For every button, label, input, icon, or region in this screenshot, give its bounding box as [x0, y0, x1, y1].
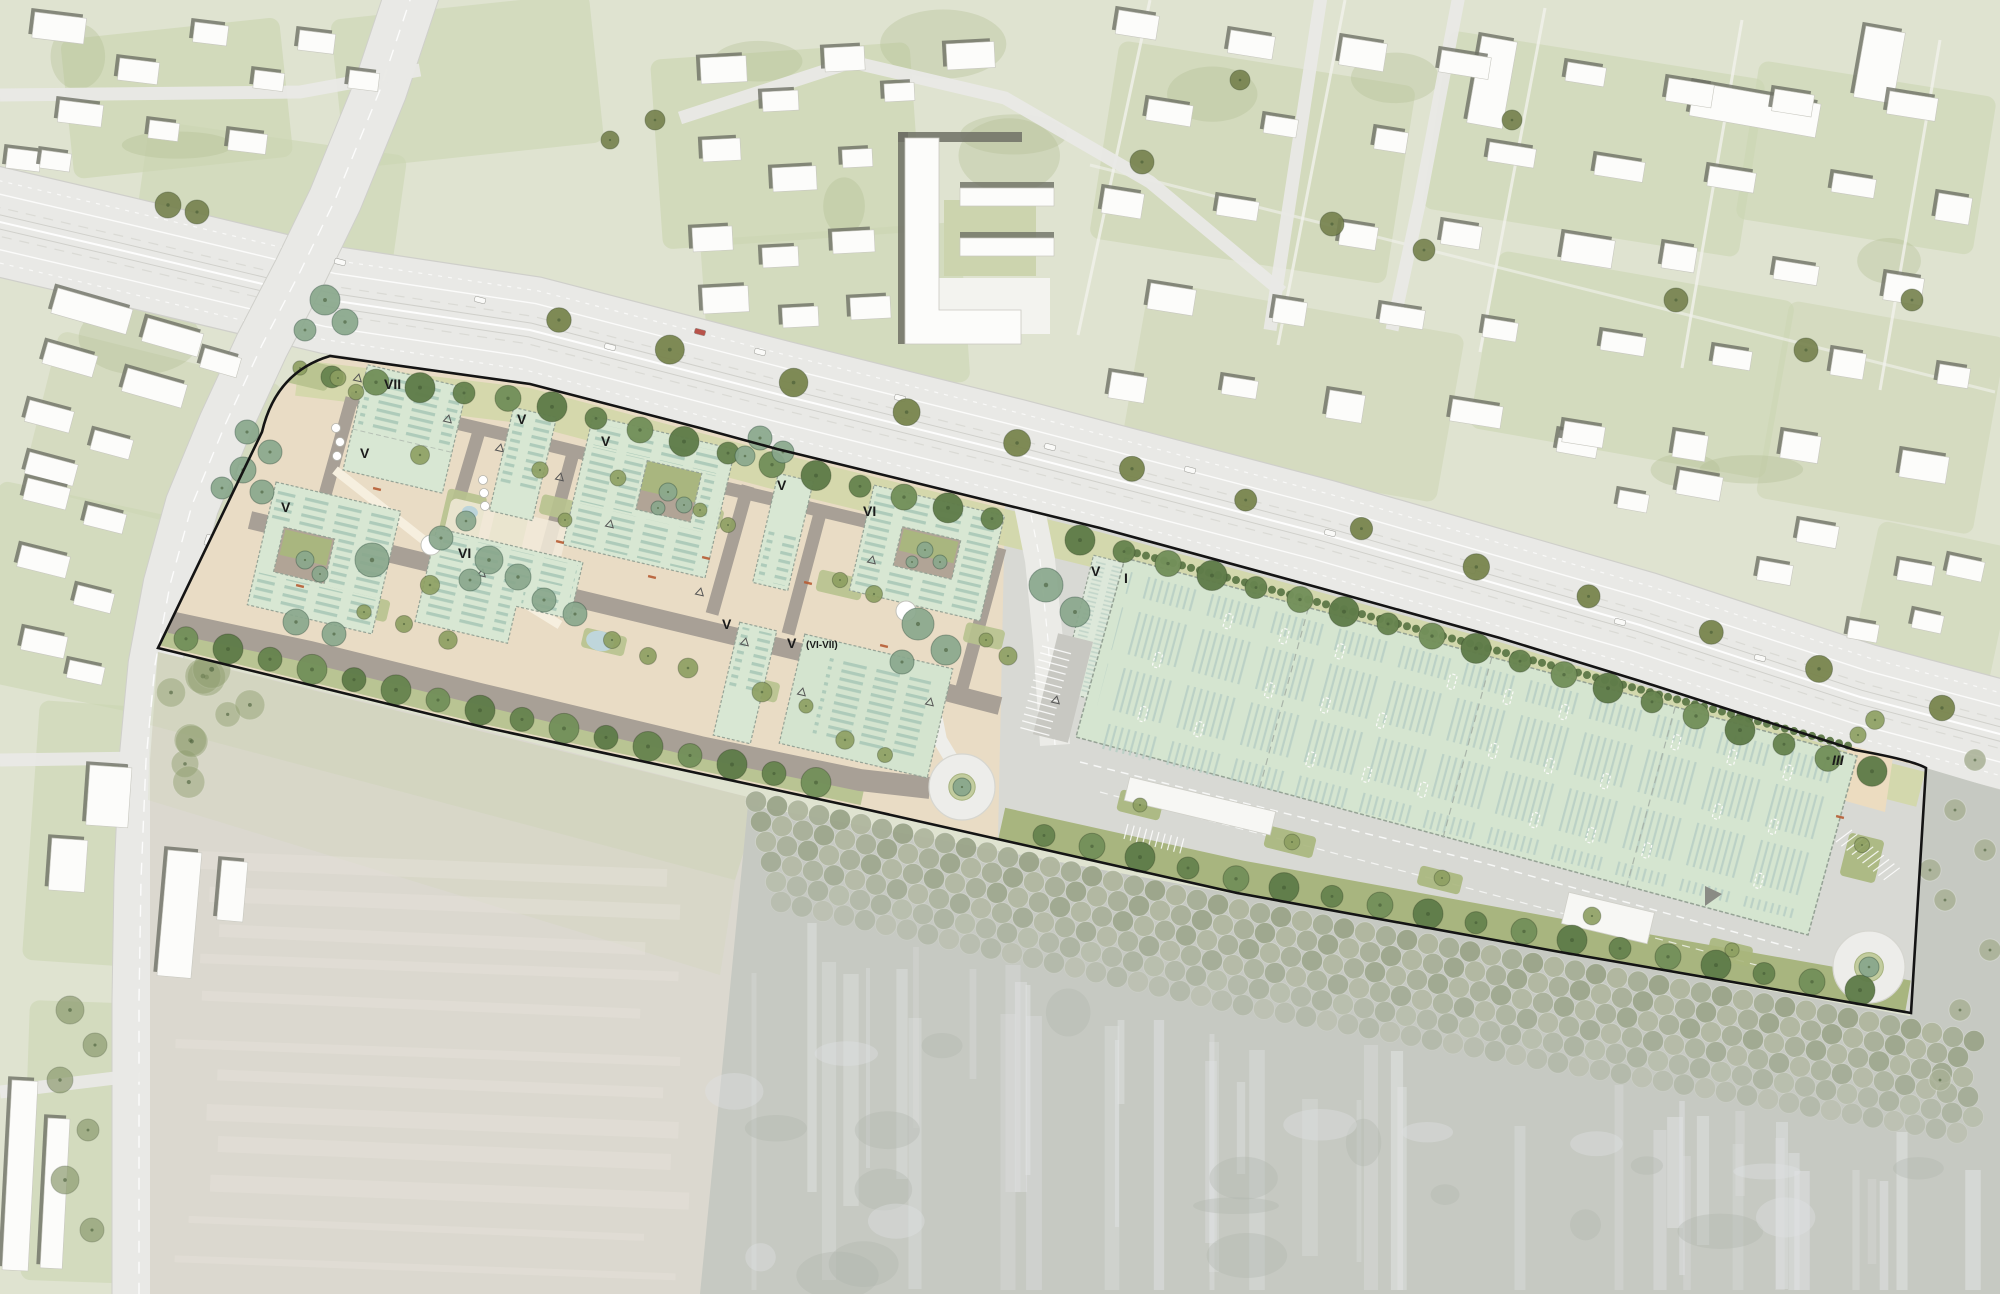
tree-center [1073, 610, 1077, 614]
tree-center [730, 763, 734, 767]
forest-tree [1223, 955, 1244, 976]
forest-tree [1517, 1008, 1538, 1029]
forest-tree [1024, 872, 1045, 893]
context-building [144, 116, 180, 141]
forest-tree [950, 893, 971, 914]
forest-tree [1716, 1081, 1737, 1102]
forest-tree [914, 828, 935, 849]
forest-light [1756, 1197, 1815, 1237]
tree-center [1939, 1079, 1942, 1082]
forest-tree [935, 833, 956, 854]
tree-center [1139, 804, 1141, 806]
forest-blotch [1193, 1197, 1279, 1214]
forest-tree [1596, 1003, 1617, 1024]
tree-center [1430, 634, 1433, 637]
forest-tree [1018, 927, 1039, 948]
context-building [249, 66, 285, 91]
tree-center [516, 575, 519, 578]
tree-center [221, 487, 224, 490]
forest-tree [934, 908, 955, 929]
tree-center [647, 655, 649, 657]
forest-tree [813, 901, 834, 922]
forest-tree [835, 829, 856, 850]
tree-center [638, 428, 641, 431]
forest-blotch [921, 1033, 962, 1058]
tree-center [1940, 706, 1943, 709]
tree-center [916, 622, 920, 626]
context-building [1268, 294, 1308, 327]
context-building-body [1108, 372, 1148, 403]
forest-tree [1906, 1038, 1927, 1059]
tree-center [604, 736, 607, 739]
forest-tree [829, 885, 850, 906]
forest-tree [1144, 956, 1165, 977]
forest-tree [1459, 1017, 1480, 1038]
tree-center [814, 781, 818, 785]
tree-center [436, 699, 439, 702]
forest-tree [1822, 1024, 1843, 1045]
tree-center [682, 440, 686, 444]
context-building-body [117, 58, 159, 85]
tree-center [924, 549, 926, 551]
tree-center [1763, 972, 1766, 975]
context-building-body [217, 860, 248, 922]
tree-center [1944, 899, 1947, 902]
forest-tree [1103, 871, 1124, 892]
forest-tree [1454, 997, 1475, 1018]
forest-tree [1291, 986, 1312, 1007]
tree-center [1138, 855, 1142, 859]
context-building [768, 162, 817, 192]
tree-center [87, 1129, 90, 1132]
forest-tree [1229, 899, 1250, 920]
forest-tree [1737, 1085, 1758, 1106]
forest-tree [1208, 894, 1229, 915]
forest-tree [1318, 934, 1339, 955]
forest-tree [792, 896, 813, 917]
forest-tree [1522, 1028, 1543, 1049]
forest-tree [1800, 1096, 1821, 1117]
forest-tree [1911, 1058, 1932, 1079]
forest-tree [1680, 1018, 1701, 1039]
forest-tree [887, 879, 908, 900]
forest-tree [1549, 976, 1570, 997]
forest-tree [1443, 1033, 1464, 1054]
forest-tree [1355, 922, 1376, 943]
tree-center [1929, 869, 1932, 872]
forest-tree [771, 892, 792, 913]
forest-tree [1523, 953, 1544, 974]
forest-tree [1817, 1004, 1838, 1025]
forest-tree [1323, 954, 1344, 975]
context-building [942, 38, 995, 70]
forest-tree [1165, 961, 1186, 982]
forest-tree [961, 858, 982, 879]
context-building-body [832, 230, 875, 254]
forest-tree [1066, 881, 1087, 902]
forest-tree [1123, 951, 1144, 972]
forest-tree [1397, 930, 1418, 951]
forest-tree [1212, 990, 1233, 1011]
hedge [1268, 586, 1276, 594]
tree-center [195, 210, 198, 213]
forest-tree [1507, 969, 1528, 990]
forest-tree [1674, 1074, 1695, 1095]
forest-tree [1271, 907, 1292, 928]
forest-tree [1648, 1051, 1669, 1072]
context-building-body [782, 306, 819, 328]
forest-tree [892, 899, 913, 920]
forest-tree [834, 905, 855, 926]
forest-tree [982, 862, 1003, 883]
tree-center [1298, 598, 1301, 601]
forest-tree [966, 878, 987, 899]
forest-light [815, 1041, 878, 1066]
tree-center [944, 648, 948, 652]
context-building [294, 26, 337, 54]
tree-center [226, 713, 229, 716]
forest-tree [1044, 952, 1065, 973]
forest-tree [1838, 1008, 1859, 1029]
forest-blotch [745, 1115, 807, 1142]
forest-tree [971, 898, 992, 919]
context-building-body [700, 56, 747, 84]
tree-center [506, 397, 509, 400]
tree-center [1591, 915, 1593, 917]
forest-tree [1338, 1014, 1359, 1035]
forest-tree [1963, 1106, 1984, 1127]
planter [480, 489, 489, 498]
context-building-body [348, 70, 380, 92]
context-building [344, 66, 380, 91]
context-building [846, 292, 891, 320]
tree-center [1474, 646, 1478, 650]
context-building-body [39, 150, 71, 172]
forest-tree [1381, 946, 1402, 967]
forest-tree [751, 811, 772, 832]
forest-tree [998, 847, 1019, 868]
forest-tree [1565, 960, 1586, 981]
forest-tree [913, 904, 934, 925]
forest-tree [1926, 1118, 1947, 1139]
tree-center [343, 320, 346, 323]
tree-center [1123, 550, 1126, 553]
tree-center [1330, 222, 1333, 225]
forest-tree [1401, 1025, 1422, 1046]
forest-tree [1449, 977, 1470, 998]
forest-tree [1166, 885, 1187, 906]
forest-blotch [1677, 1214, 1763, 1249]
tree-center [403, 623, 405, 625]
forest-tree [1191, 985, 1212, 1006]
context-building [1657, 239, 1698, 273]
context-building [1104, 368, 1148, 403]
forest-tree [1113, 911, 1134, 932]
tree-center [1619, 947, 1622, 950]
tree-center [1989, 949, 1992, 952]
tree-center [1239, 79, 1242, 82]
forest-tree [756, 831, 777, 852]
forest-tree [919, 848, 940, 869]
forest-tree [1391, 985, 1412, 1006]
building-level-label: VI [458, 545, 471, 561]
forest-tree [1586, 964, 1607, 985]
forest-tree [1422, 1029, 1443, 1050]
tree-center [900, 660, 903, 663]
forest-tree [1302, 950, 1323, 971]
forest-tree [1008, 887, 1029, 908]
forest-tree [1570, 980, 1591, 1001]
forest-tree [1334, 918, 1355, 939]
forest-tree [1439, 937, 1460, 958]
forest-tree [1821, 1100, 1842, 1121]
forest-tree [1863, 1107, 1884, 1128]
forest-tree [955, 913, 976, 934]
forest-tree [1039, 932, 1060, 953]
forest-tree [1071, 901, 1092, 922]
context-building-body [1935, 193, 1973, 225]
forest-tree [788, 800, 809, 821]
tree-center [1587, 595, 1590, 598]
tree-center [463, 392, 466, 395]
forest-tree [1486, 965, 1507, 986]
context-building [1931, 189, 1973, 225]
forest-tree [1134, 916, 1155, 937]
forest-tree [1129, 895, 1150, 916]
forest-tree [1811, 1060, 1832, 1081]
hedge [1322, 600, 1330, 608]
tree-center [310, 667, 314, 671]
tree-center [1166, 562, 1169, 565]
tree-center [337, 377, 339, 379]
forest-tree [1738, 1009, 1759, 1030]
tree-center [1044, 583, 1048, 587]
forest-tree [1145, 880, 1166, 901]
tree-center [1714, 963, 1718, 967]
context-building-body [1672, 431, 1709, 462]
tree-center [1244, 499, 1247, 502]
tree-center [226, 647, 230, 651]
forest-tree [1312, 990, 1333, 1011]
tree-center [991, 517, 994, 520]
tree-center [183, 762, 187, 766]
forest-tree [1879, 1091, 1900, 1112]
forest-blotch [1209, 1157, 1277, 1200]
tree-center [439, 536, 442, 539]
forest-tree [793, 820, 814, 841]
tree-center [1959, 1009, 1962, 1012]
context-building [1668, 427, 1709, 462]
building-level-label: I [1124, 570, 1128, 586]
context-building [778, 303, 819, 329]
forest-blotch [1570, 1209, 1601, 1240]
forest-tree [1407, 969, 1428, 990]
forest-tree [1706, 1042, 1727, 1063]
forest-tree [1176, 925, 1197, 946]
hedge [1448, 634, 1456, 642]
forest-tree [1905, 1114, 1926, 1135]
forest-tree [992, 903, 1013, 924]
tree-center [169, 691, 173, 695]
forest-tree [1538, 1012, 1559, 1033]
forest-tree [1149, 976, 1170, 997]
forest-tree [1465, 961, 1486, 982]
forest-tree [1317, 1010, 1338, 1031]
forest-tree [1376, 926, 1397, 947]
forest-tree [1527, 1048, 1548, 1069]
tree-center [1043, 834, 1046, 837]
forest-tree [1402, 949, 1423, 970]
forest-tree [1139, 936, 1160, 957]
tree-center [792, 381, 796, 385]
forest-tree [855, 910, 876, 931]
school-bar [960, 188, 1054, 206]
forest-light [745, 1243, 776, 1271]
building-level-label: V [360, 445, 370, 461]
forest-tree [1675, 998, 1696, 1019]
tree-center [687, 667, 690, 670]
forest-tree [1890, 1055, 1911, 1076]
context-building [698, 135, 741, 163]
tree-center [873, 593, 875, 595]
forest-tree [1922, 1023, 1943, 1044]
tree-center [1210, 574, 1214, 578]
tree-center [268, 450, 271, 453]
forest-tree [1065, 957, 1086, 978]
tree-center [166, 203, 169, 206]
forest-tree [1481, 945, 1502, 966]
context-building-body [6, 148, 42, 172]
forest-tree [1691, 982, 1712, 1003]
forest-tree [1785, 1036, 1806, 1057]
forest-tree [1197, 930, 1218, 951]
tree-center [260, 490, 263, 493]
tree-center [1387, 622, 1390, 625]
forest-light [1570, 1131, 1623, 1156]
forest-tree [1869, 1051, 1890, 1072]
forest-tree [1874, 1071, 1895, 1092]
context-building-body [228, 130, 268, 154]
tree-center [63, 1178, 67, 1182]
building-level-label: VI [863, 503, 876, 519]
context-building-body [193, 22, 229, 46]
context-building [1826, 345, 1867, 380]
tree-center [902, 495, 905, 498]
forest-tree [956, 837, 977, 858]
forest-tree [861, 854, 882, 875]
context-building [189, 18, 230, 46]
tree-center [304, 559, 306, 561]
forest-tree [1843, 1027, 1864, 1048]
tree-center [814, 474, 818, 478]
forest-tree [1743, 1029, 1764, 1050]
forest-tree [840, 849, 861, 870]
forest-tree [1102, 946, 1123, 967]
context-building-body [702, 286, 749, 314]
forest-tree [1360, 942, 1381, 963]
context-building [838, 145, 873, 168]
tree-center [946, 506, 950, 510]
tree-center [1826, 757, 1829, 760]
forest-light [1402, 1122, 1453, 1142]
tree-center [465, 520, 468, 523]
context-building-body [86, 765, 132, 828]
forest-tree [1612, 987, 1633, 1008]
forest-tree [1228, 975, 1249, 996]
forest-tree [1585, 1040, 1606, 1061]
tree-center [1342, 610, 1346, 614]
tree-center [1426, 912, 1430, 916]
forest-tree [1328, 974, 1349, 995]
forest-tree [1901, 1019, 1922, 1040]
forest-tree [819, 845, 840, 866]
tree-center [905, 410, 909, 414]
forest-tree [1611, 1063, 1632, 1084]
context-building [213, 856, 248, 922]
tree-center [1666, 955, 1669, 958]
forest-tree [1423, 953, 1444, 974]
tree-center [844, 739, 846, 741]
tree-center [418, 386, 422, 390]
forest-tree [1927, 1042, 1948, 1063]
masterplan-stage: VIIVVVVVIVVIVV(VI-VII)VIIII [0, 0, 2000, 1294]
forest-tree [1685, 1038, 1706, 1059]
forest-tree [1664, 1034, 1685, 1055]
forest-tree [1055, 917, 1076, 938]
tree-center [1694, 714, 1697, 717]
forest-tree [803, 860, 824, 881]
tree-center [245, 430, 248, 433]
forest-tree [1076, 921, 1097, 942]
tree-center [1519, 660, 1522, 663]
hedge [1628, 683, 1636, 691]
forest-tree [1107, 966, 1128, 987]
forest-tree [1034, 912, 1055, 933]
forest-tree [1359, 1018, 1380, 1039]
tree-center [1522, 930, 1525, 933]
forest-tree [1506, 1044, 1527, 1065]
tree-center [1974, 759, 1977, 762]
forest-tree [1753, 1069, 1774, 1090]
forest-tree [1842, 1103, 1863, 1124]
tree-center [654, 119, 657, 122]
forest-tree [1460, 941, 1481, 962]
forest-tree [1255, 923, 1276, 944]
building-level-label: V [787, 635, 797, 651]
forest-tree [876, 914, 897, 935]
forest-tree [981, 938, 1002, 959]
tree-center [187, 780, 191, 784]
forest-tree [830, 809, 851, 830]
forest-tree [1790, 1056, 1811, 1077]
tree-center [688, 754, 691, 757]
tree-center [1651, 700, 1654, 703]
tree-center [323, 298, 327, 302]
forest-tree [1953, 1066, 1974, 1087]
tree-center [429, 584, 432, 587]
forest-tree [1192, 910, 1213, 931]
tree-center [447, 639, 449, 641]
context-building [758, 243, 799, 269]
forest-tree [1554, 996, 1575, 1017]
context-building [113, 54, 160, 85]
forest-tree [1722, 1025, 1743, 1046]
tree-center [374, 381, 377, 384]
forest-tree [1187, 889, 1208, 910]
forest-tree [1354, 998, 1375, 1019]
context-building-body [1830, 349, 1867, 380]
forest-tree [929, 888, 950, 909]
